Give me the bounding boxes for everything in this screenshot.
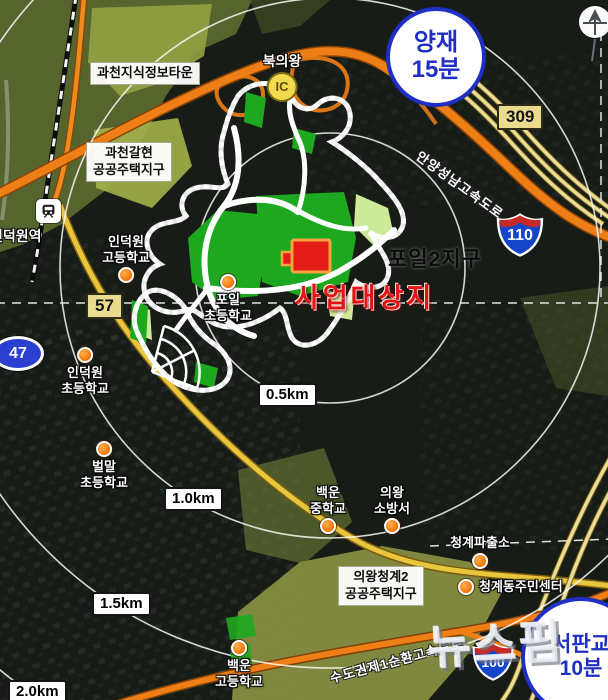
district-label-poil2: 포일2지구: [388, 243, 482, 273]
train-station-icon: [36, 199, 61, 223]
poi-poil-elementary-school: 포일 초등학교: [204, 274, 252, 323]
compass-icon: [576, 3, 608, 70]
road-sign-309: 309: [497, 104, 543, 130]
travel-time-badge-yangjae: 양재 15분: [386, 7, 486, 107]
area-label-gwacheon-galhyeon: 과천갈현 공공주택지구: [86, 142, 172, 182]
road-sign-57: 57: [86, 293, 123, 319]
poi-marker-icon: [458, 579, 474, 595]
poi-beolmal-elementary-school: 벌말 초등학교: [80, 441, 128, 490]
poi-cheonggye-police-box: 청계파출소: [450, 535, 510, 569]
poi-marker-icon: [220, 274, 236, 290]
badge-yangjae-line2: 15분: [412, 57, 461, 84]
badge-seopangyo-line2: 10분: [560, 657, 603, 681]
station-indeogwon: 인덕원역: [0, 199, 61, 246]
interchange-name: 북의왕: [263, 53, 302, 71]
shield-110-number: 110: [496, 228, 544, 244]
news-watermark: 뉴스핌: [426, 602, 565, 678]
poi-marker-icon: [77, 347, 93, 363]
ring-label-1-5km: 1.5km: [92, 592, 151, 616]
area-label-uiwang-cheonggye: 의왕청계2 공공주택지구: [338, 566, 424, 606]
poi-indeogwon-elementary-school: 인덕원 초등학교: [61, 347, 109, 396]
area-label-gwacheon-tech: 과천지식정보타운: [90, 62, 200, 85]
ring-label-0-5km: 0.5km: [258, 383, 317, 407]
poi-marker-icon: [118, 267, 134, 283]
poi-baegun-high-school: 백운 고등학교: [215, 640, 263, 689]
badge-yangjae-line1: 양재: [414, 30, 458, 57]
ring-label-1-0km: 1.0km: [164, 487, 223, 511]
poi-marker-icon: [320, 518, 336, 534]
interchange-bukuiwang: 북의왕 IC: [263, 53, 302, 102]
poi-baegun-middle-school: 백운 중학교: [310, 485, 346, 534]
poi-cheonggye-community-center: 청계동주민센터: [458, 579, 563, 595]
satellite-map: 양재 15분 서판교 10분 과천지식정보타운 과천갈현 공공주택지구 의왕청계…: [0, 0, 608, 700]
ic-badge: IC: [266, 72, 297, 102]
poi-marker-icon: [231, 640, 247, 656]
project-site-label: 사업대상지: [295, 276, 434, 315]
poi-uiwang-fire-station: 의왕 소방서: [374, 485, 410, 534]
ring-label-2-0km: 2.0km: [8, 680, 67, 700]
poi-marker-icon: [384, 518, 400, 534]
poi-marker-icon: [472, 553, 488, 569]
poi-indeogwon-high-school: 인덕원 고등학교: [102, 234, 150, 283]
expressway-shield-110: 110: [496, 213, 544, 257]
station-name: 인덕원역: [0, 226, 42, 246]
poi-marker-icon: [96, 441, 112, 457]
